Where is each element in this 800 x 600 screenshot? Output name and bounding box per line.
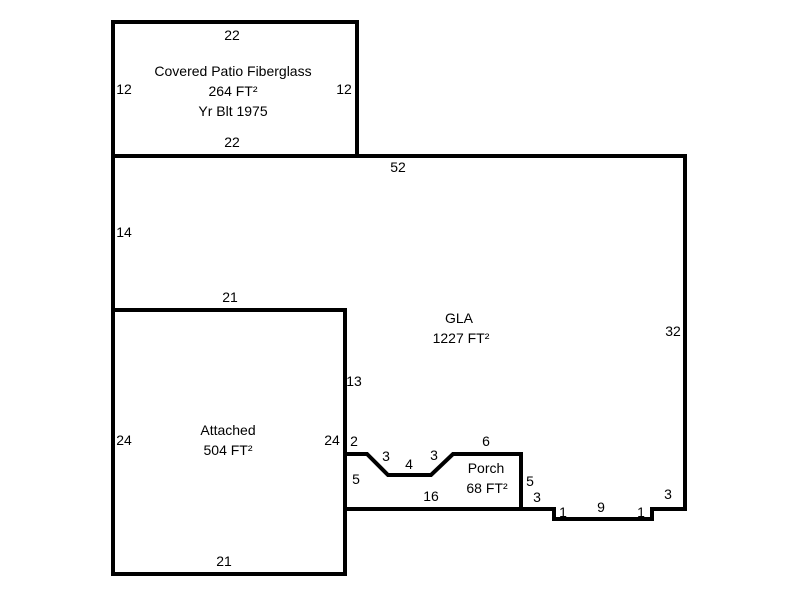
dimension-label: 24	[116, 433, 132, 447]
dimension-label: 4	[405, 457, 413, 471]
dimension-label: 22	[224, 135, 240, 149]
porch-name-label: Porch	[468, 461, 505, 475]
dimension-label: 3	[430, 448, 438, 462]
dimension-label: 5	[526, 474, 534, 488]
gla-outline	[113, 156, 685, 519]
dimension-label: 6	[482, 434, 490, 448]
dimension-label: 32	[665, 324, 681, 338]
dimension-label: 12	[336, 82, 352, 96]
dimension-label: 1	[559, 505, 567, 519]
dimension-label: 52	[390, 160, 406, 174]
dimension-label: 13	[346, 374, 362, 388]
dimension-label: 21	[216, 554, 232, 568]
covered-patio-area-label: 264 FT²	[208, 84, 257, 98]
dimension-label: 1	[637, 505, 645, 519]
dimension-label: 24	[324, 433, 340, 447]
dimension-label: 12	[116, 82, 132, 96]
dimension-label: 14	[116, 225, 132, 239]
covered-patio-name-label: Covered Patio Fiberglass	[154, 64, 311, 78]
gla-area-label: 1227 FT²	[433, 331, 490, 345]
dimension-label: 22	[224, 28, 240, 42]
porch-area-label: 68 FT²	[466, 481, 507, 495]
attached-name-label: Attached	[200, 423, 255, 437]
dimension-label: 16	[423, 489, 439, 503]
dimension-label: 2	[350, 434, 358, 448]
attached-area-label: 504 FT²	[203, 443, 252, 457]
dimension-label: 3	[382, 449, 390, 463]
dimension-label: 5	[352, 472, 360, 486]
dimension-label: 9	[597, 500, 605, 514]
gla-name-label: GLA	[445, 311, 473, 325]
dimension-label: 21	[222, 290, 238, 304]
dimension-label: 3	[533, 490, 541, 504]
covered-patio-yearbuilt-label: Yr Blt 1975	[198, 104, 267, 118]
dimension-label: 3	[664, 487, 672, 501]
floor-plan-sketch: Covered Patio Fiberglass 264 FT² Yr Blt …	[0, 0, 800, 600]
